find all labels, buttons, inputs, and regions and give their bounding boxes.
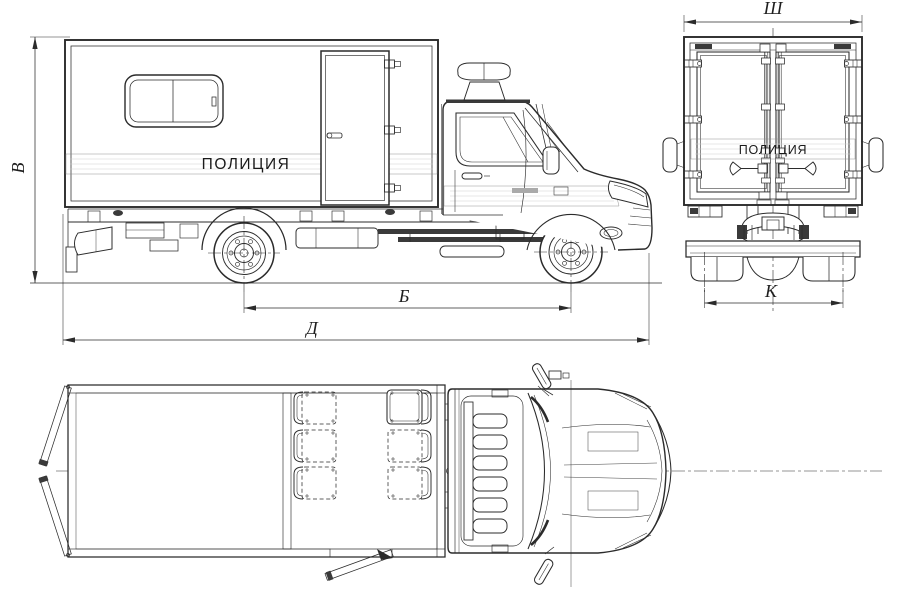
roof-beacon-top bbox=[549, 371, 569, 379]
rear-bumper bbox=[686, 241, 860, 257]
fuel-tank bbox=[296, 228, 378, 248]
box-side-door bbox=[321, 51, 401, 205]
technical-drawing: ПОЛИЦИЯ bbox=[0, 0, 900, 593]
cab-top bbox=[448, 362, 671, 587]
drawing-sheet: ПОЛИЦИЯ bbox=[0, 0, 900, 593]
rear-mud-flap bbox=[66, 247, 77, 272]
dimension-length-label: Д bbox=[304, 318, 319, 338]
muffler bbox=[440, 246, 504, 257]
police-text-side: ПОЛИЦИЯ bbox=[202, 156, 291, 173]
rear-box: ПОЛИЦИЯ bbox=[684, 37, 862, 205]
dimension-track: К bbox=[705, 281, 844, 308]
top-view bbox=[38, 362, 882, 587]
marker-light bbox=[695, 44, 712, 49]
dimension-width-label: Ш bbox=[763, 0, 784, 18]
side-view: ПОЛИЦИЯ bbox=[8, 37, 662, 345]
box-window bbox=[125, 75, 223, 127]
dimension-height: В bbox=[8, 37, 70, 283]
rear-view: ПОЛИЦИЯ bbox=[663, 0, 883, 312]
marker-light bbox=[834, 44, 851, 49]
dimension-wheelbase-label: Б bbox=[398, 286, 410, 306]
cargo-box: ПОЛИЦИЯ bbox=[65, 40, 438, 207]
dimension-wheelbase: Б bbox=[244, 286, 571, 313]
police-text-rear: ПОЛИЦИЯ bbox=[739, 143, 808, 157]
rear-wheel bbox=[202, 208, 286, 292]
roof-beacon bbox=[458, 63, 511, 100]
dimension-track-label: К bbox=[764, 281, 778, 301]
dimension-width: Ш bbox=[684, 0, 862, 32]
dimension-height-label: В bbox=[8, 163, 28, 174]
badge bbox=[512, 188, 538, 193]
exhaust-outlet bbox=[75, 227, 113, 255]
